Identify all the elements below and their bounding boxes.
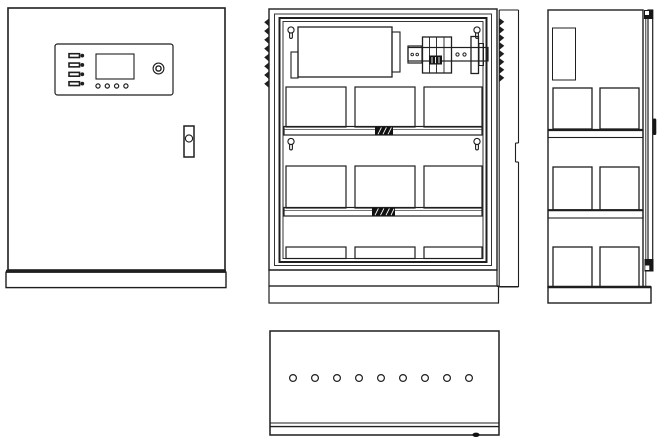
side-handle-bump bbox=[653, 119, 657, 136]
hinge-tooth-icon bbox=[499, 18, 504, 26]
power-knob-center bbox=[156, 66, 161, 71]
battery-module-side bbox=[553, 88, 592, 129]
hinge-tooth-icon bbox=[499, 34, 504, 42]
power-module-right-tab bbox=[392, 32, 400, 72]
side-power-module bbox=[553, 28, 576, 80]
hinge-tooth-icon bbox=[264, 62, 269, 71]
led-dot-icon bbox=[81, 82, 84, 85]
terminal-screw bbox=[411, 53, 414, 56]
hinge-tooth-icon bbox=[499, 66, 504, 74]
vent-hole bbox=[378, 375, 385, 382]
vent-hole bbox=[290, 375, 297, 382]
side-base-plinth bbox=[548, 287, 651, 303]
open-door-edge bbox=[499, 10, 518, 287]
vent-hole bbox=[444, 375, 451, 382]
panel-button bbox=[105, 84, 109, 88]
panel-button-row bbox=[96, 84, 128, 88]
internal-inner-line bbox=[283, 22, 483, 259]
mounting-keyhole-icon bbox=[288, 27, 294, 39]
hinge-tooth-icon bbox=[264, 27, 269, 36]
hinge-tooth-icon bbox=[499, 50, 504, 58]
led-label bbox=[69, 82, 80, 86]
vent-hole bbox=[466, 375, 473, 382]
side-shelf bbox=[548, 130, 643, 138]
keyhole-circle bbox=[474, 138, 480, 144]
panel-button bbox=[124, 84, 128, 88]
shelf-hatch-block bbox=[375, 127, 393, 135]
hinge-tooth-icon bbox=[499, 26, 504, 34]
terminal-screw bbox=[416, 53, 419, 56]
front-view bbox=[6, 8, 226, 288]
vent-hole bbox=[400, 375, 407, 382]
internal-base-band-lower bbox=[269, 286, 499, 303]
battery-module-side bbox=[600, 88, 639, 129]
keyhole-circle bbox=[288, 138, 294, 144]
side-cabinet-body bbox=[548, 10, 643, 287]
display-screen bbox=[96, 54, 134, 79]
rail-screw bbox=[463, 53, 466, 56]
hook-notch bbox=[645, 11, 649, 15]
hinge-teeth-right bbox=[499, 18, 504, 82]
battery-module bbox=[286, 166, 346, 208]
power-knob-icon bbox=[153, 63, 164, 74]
internal-outer-frame bbox=[269, 9, 497, 270]
led-label bbox=[69, 72, 80, 76]
panel-button bbox=[115, 84, 119, 88]
battery-grid bbox=[286, 87, 482, 259]
hinge-tooth-icon bbox=[264, 18, 269, 27]
battery-module bbox=[424, 166, 482, 208]
side-view bbox=[548, 10, 656, 303]
hook-notch bbox=[645, 266, 649, 271]
front-base-plinth bbox=[6, 272, 226, 287]
led-dot-icon bbox=[81, 54, 84, 57]
door-lock bbox=[185, 135, 192, 142]
led-dot-icon bbox=[81, 64, 84, 67]
door-handle bbox=[184, 126, 194, 157]
vent-hole bbox=[356, 375, 363, 382]
battery-module-side bbox=[553, 167, 592, 210]
battery-module bbox=[424, 247, 482, 259]
battery-module-side bbox=[553, 247, 592, 287]
vent-hole bbox=[422, 375, 429, 382]
battery-module bbox=[286, 247, 346, 259]
din-rail bbox=[408, 48, 488, 62]
control-panel bbox=[55, 44, 173, 95]
cabinet-drawing-svg bbox=[0, 0, 658, 443]
battery-module-side bbox=[600, 167, 639, 210]
hinge-tooth-icon bbox=[264, 71, 269, 80]
hinge-tooth-icon bbox=[264, 53, 269, 62]
end-clamp bbox=[471, 37, 479, 74]
panel-button bbox=[96, 84, 100, 88]
battery-module bbox=[355, 166, 415, 208]
battery-module bbox=[355, 247, 415, 259]
hinge-tooth-icon bbox=[499, 58, 504, 66]
led-dot-icon bbox=[81, 73, 84, 76]
mounting-keyhole-icon bbox=[288, 138, 294, 150]
side-battery-grid bbox=[553, 88, 639, 287]
bottom-stud bbox=[472, 433, 479, 437]
battery-module-side bbox=[600, 247, 639, 287]
hinge-tooth-icon bbox=[264, 36, 269, 45]
hinge-tooth-icon bbox=[264, 44, 269, 53]
vent-hole bbox=[312, 375, 319, 382]
battery-module bbox=[424, 87, 482, 127]
technical-drawing-canvas bbox=[0, 0, 658, 443]
led-label bbox=[69, 54, 80, 58]
internal-view bbox=[264, 9, 518, 303]
power-module-left-tab bbox=[291, 52, 298, 78]
hinge-tooth-icon bbox=[499, 74, 504, 82]
internal-wall-line bbox=[275, 14, 492, 266]
hinge-tooth-icon bbox=[264, 80, 269, 89]
circuit-breaker-body bbox=[423, 37, 452, 73]
rail-screw bbox=[456, 53, 459, 56]
keyhole-circle bbox=[288, 27, 294, 33]
breaker-assembly bbox=[408, 37, 488, 74]
mounting-keyhole-icon bbox=[474, 138, 480, 150]
side-door-bar bbox=[648, 10, 653, 270]
vent-hole-row bbox=[290, 375, 473, 382]
battery-module bbox=[286, 87, 346, 127]
hinge-tooth-icon bbox=[499, 42, 504, 50]
battery-module bbox=[355, 87, 415, 127]
bottom-panel bbox=[270, 331, 499, 435]
internal-base-band-upper bbox=[269, 270, 497, 286]
power-module bbox=[298, 27, 392, 77]
vent-hole bbox=[334, 375, 341, 382]
keyhole-circle bbox=[474, 27, 480, 33]
bottom-view bbox=[270, 331, 499, 437]
led-label bbox=[69, 63, 80, 67]
led-indicator-block bbox=[69, 54, 84, 86]
